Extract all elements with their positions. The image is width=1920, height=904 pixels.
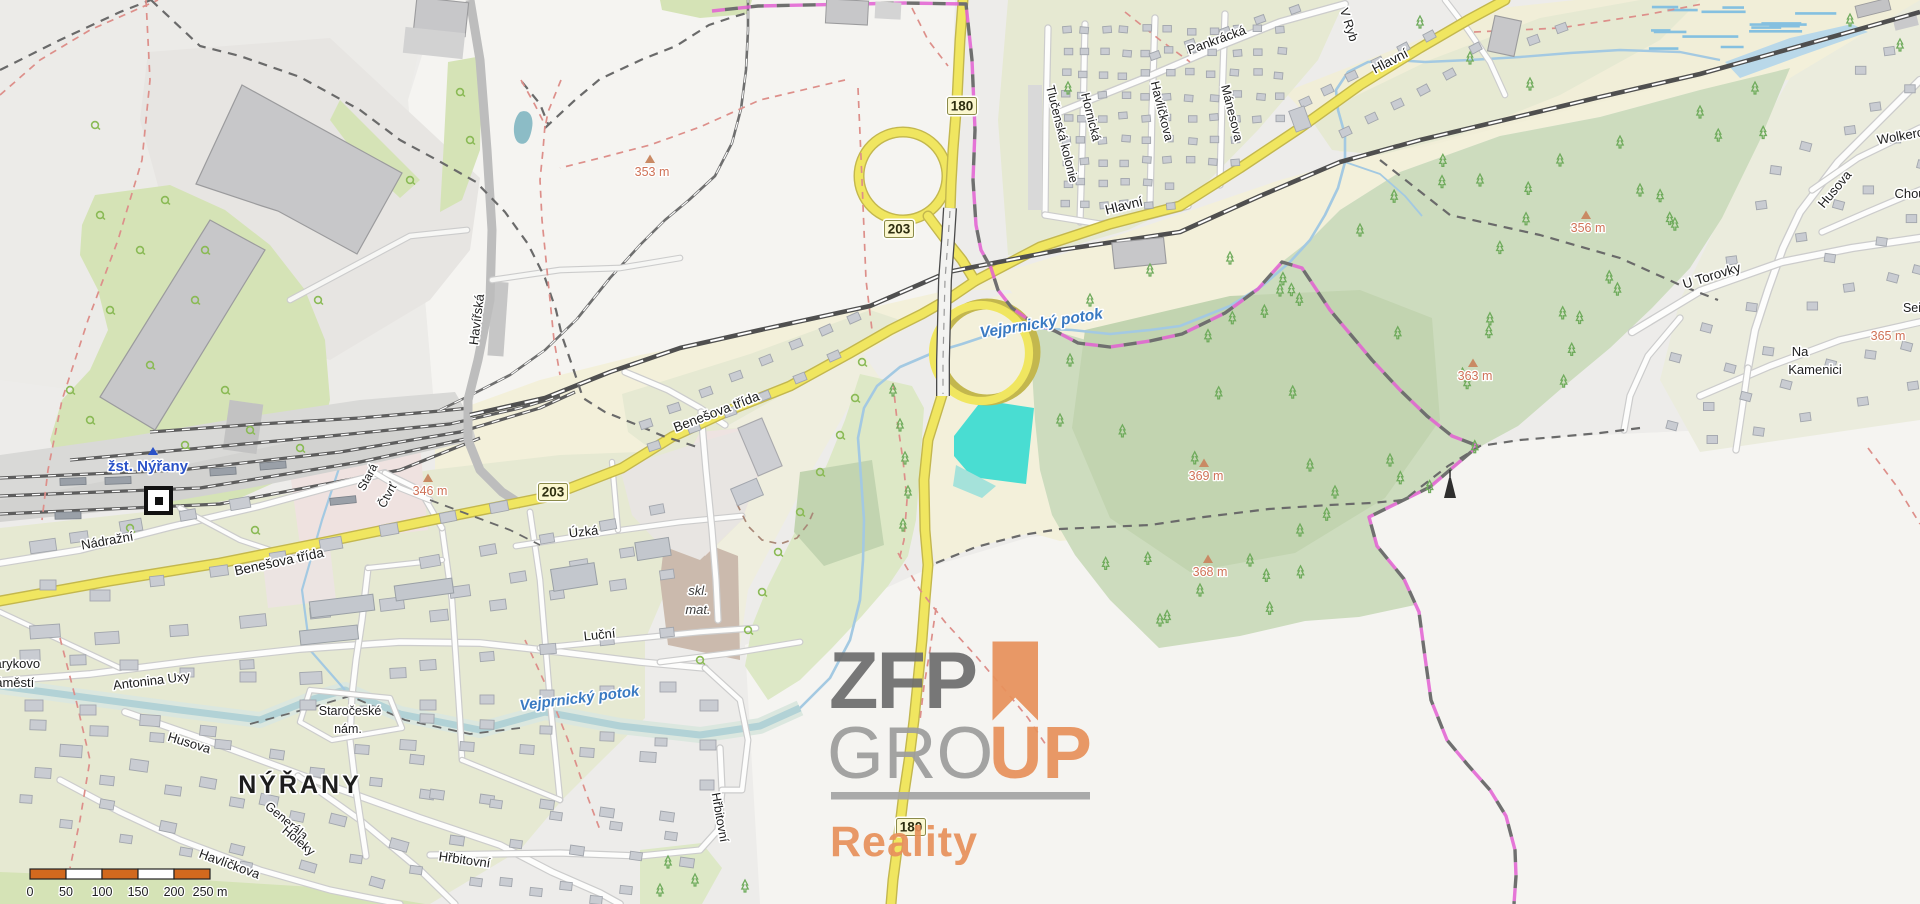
svg-text:Reality: Reality [830, 818, 978, 866]
svg-text:UP: UP [989, 711, 1092, 794]
svg-text:Kamenici: Kamenici [1788, 362, 1842, 377]
svg-text:NÝŘANY: NÝŘANY [238, 769, 362, 799]
svg-text:mat.: mat. [685, 602, 710, 617]
svg-text:Úzká: Úzká [568, 522, 600, 540]
svg-text:368 m: 368 m [1193, 565, 1228, 579]
svg-text:žst. Nýřany: žst. Nýřany [108, 458, 189, 475]
svg-text:Staročeské: Staročeské [319, 704, 382, 718]
svg-text:353 m: 353 m [635, 165, 670, 179]
svg-text:203: 203 [888, 222, 911, 237]
svg-text:365 m: 365 m [1871, 329, 1906, 343]
svg-text:363 m: 363 m [1458, 369, 1493, 383]
svg-text:Masarykovo: Masarykovo [0, 656, 40, 671]
svg-text:0: 0 [27, 885, 34, 899]
svg-text:Na: Na [1792, 344, 1809, 359]
svg-text:200: 200 [164, 885, 185, 899]
svg-text:369 m: 369 m [1189, 469, 1224, 483]
svg-text:Sei: Sei [1903, 301, 1920, 315]
svg-text:GRO: GRO [827, 713, 993, 794]
svg-text:203: 203 [542, 485, 565, 500]
svg-text:náměstí: náměstí [0, 675, 35, 690]
svg-text:250 m: 250 m [193, 885, 228, 899]
svg-text:skl.: skl. [688, 583, 708, 598]
svg-text:150: 150 [128, 885, 149, 899]
svg-text:346 m: 346 m [413, 484, 448, 498]
svg-text:180: 180 [951, 99, 974, 114]
svg-text:Chou: Chou [1894, 186, 1920, 201]
svg-text:nám.: nám. [334, 722, 362, 736]
svg-text:100: 100 [92, 885, 113, 899]
svg-text:356 m: 356 m [1571, 221, 1606, 235]
svg-text:50: 50 [59, 885, 73, 899]
